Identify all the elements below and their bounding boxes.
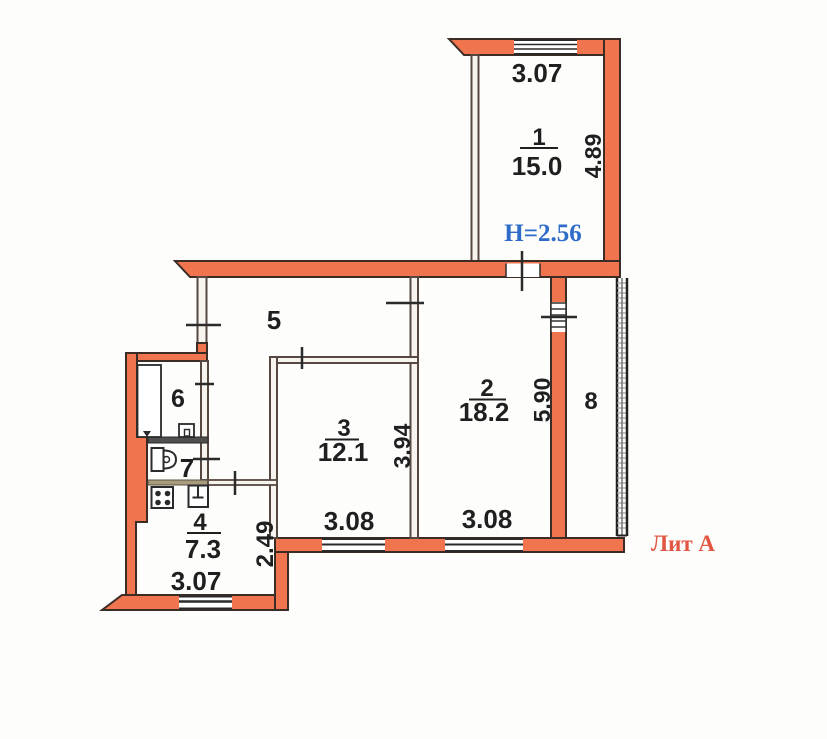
svg-text:H=2.56: H=2.56 xyxy=(504,220,581,247)
svg-text:3.08: 3.08 xyxy=(462,504,513,534)
svg-text:5.90: 5.90 xyxy=(529,378,555,423)
svg-text:5: 5 xyxy=(267,305,281,335)
svg-text:3.07: 3.07 xyxy=(512,58,563,88)
svg-text:4.89: 4.89 xyxy=(580,134,606,179)
svg-text:3.08: 3.08 xyxy=(324,506,375,536)
svg-text:3.94: 3.94 xyxy=(389,423,415,468)
svg-text:6: 6 xyxy=(171,385,185,413)
svg-text:7.3: 7.3 xyxy=(185,534,221,564)
svg-text:Лит А: Лит А xyxy=(651,531,715,556)
svg-text:3.07: 3.07 xyxy=(171,566,222,596)
svg-text:1: 1 xyxy=(532,124,545,151)
svg-text:4: 4 xyxy=(193,509,207,536)
svg-text:8: 8 xyxy=(584,388,597,415)
svg-text:2.49: 2.49 xyxy=(252,521,279,568)
svg-text:7: 7 xyxy=(180,453,194,483)
svg-text:12.1: 12.1 xyxy=(318,437,369,467)
svg-text:15.0: 15.0 xyxy=(512,151,563,181)
svg-text:18.2: 18.2 xyxy=(459,397,510,427)
